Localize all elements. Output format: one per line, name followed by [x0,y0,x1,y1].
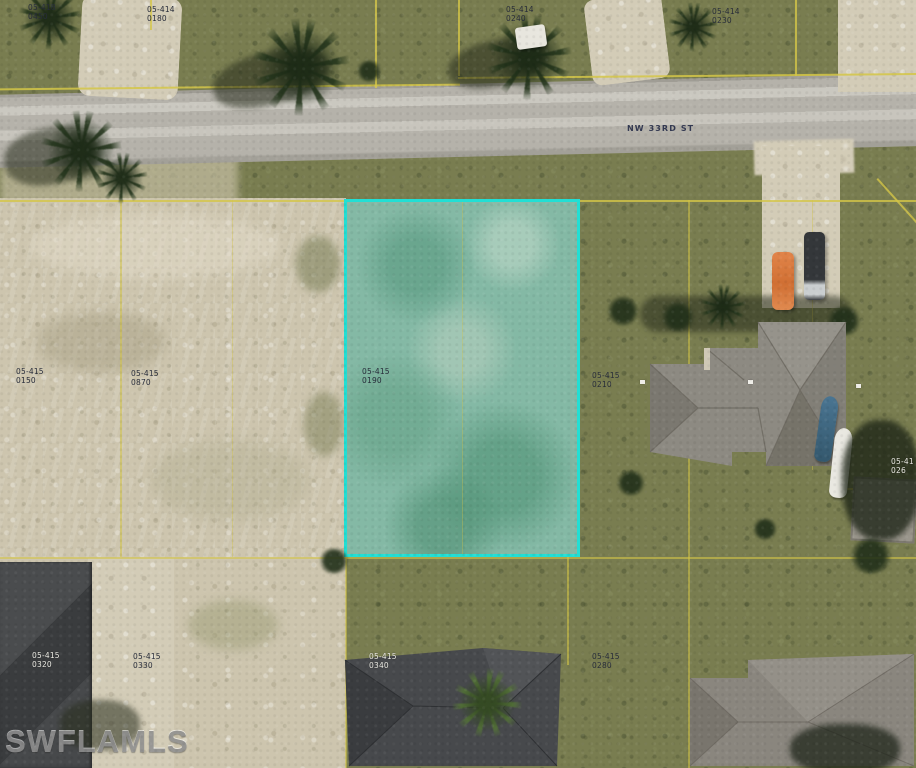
palm-tree-bottom-center [452,668,522,738]
parcel-line-rear-horizontal [0,557,916,559]
vehicle-suv [804,232,825,300]
parcel-label-line: 0240 [506,15,534,24]
survey-marker [748,380,753,384]
driveway-top-center [583,0,671,86]
parcel-line-vertical [232,200,233,557]
parcel-label-line: 0320 [32,661,60,670]
parcel-label-line: 0330 [133,662,161,671]
mls-watermark: SWFLAMLS [5,724,189,760]
tree-cluster-right [842,420,916,540]
bush [848,538,894,574]
parcel-line-inside-highlight [462,202,463,554]
parcel-label-bottom-center: 05-415 0340 [369,653,397,670]
bush [356,60,382,82]
parcel-line-vertical [120,200,122,557]
scrub-green-patch [304,392,344,456]
parcel-label-top-center: 05-414 0240 [506,6,534,23]
palm-tree [668,2,718,52]
parcel-label-line: 0210 [592,381,620,390]
parcel-label-bottom-right: 05-415 0280 [592,653,620,670]
bush [318,548,350,574]
survey-marker [640,380,645,384]
parcel-label-right-edge: 05-41 026 [891,458,914,475]
parcel-line-vertical [567,557,569,665]
bush [606,296,640,326]
parcel-label-line: 0870 [131,379,159,388]
gravel-top-right [838,0,916,92]
parcel-label-highlighted: 05-415 0190 [362,368,390,385]
palm-shadow-bottom-right [790,724,900,768]
dirt-dark-patch [36,312,166,372]
palm-tree [96,152,148,204]
parcel-label-line: 0340 [369,662,397,671]
parcel-label-line: 0190 [362,377,390,386]
survey-marker [856,384,861,388]
dirt-dark-patch [150,440,310,520]
parcel-label-mid-left-2: 05-415 0870 [131,370,159,387]
parcel-label-mid-left: 05-415 0150 [16,368,44,385]
scrub-green-patch [188,600,278,650]
parcel-label-top-left-2: 05-414 0180 [147,6,175,23]
white-structure-top [515,24,548,50]
vehicle-orange [772,252,794,310]
parcel-label-bottom-left-roof: 05-415 0320 [32,652,60,669]
street-label: NW 33RD ST [627,124,694,133]
parcel-label-mid-right: 05-415 0210 [592,372,620,389]
parcel-label-top-right: 05-414 0230 [712,8,740,25]
parcel-line-diagonal [877,178,916,227]
palm-tree [252,18,350,116]
parcel-label-top-left: 05-418 0450 [28,4,56,21]
parcel-label-line: 026 [891,467,914,476]
bush [616,470,646,496]
aerial-parcel-map: NW 33RD ST 05-418 0450 05-414 0180 05-41… [0,0,916,768]
parcel-label-line: 0450 [28,13,56,22]
parcel-label-bottom-left: 05-415 0330 [133,653,161,670]
parcel-label-line: 0280 [592,662,620,671]
scrub-green-patch [296,236,340,292]
parcel-label-line: 0230 [712,17,740,26]
parcel-label-line: 0180 [147,15,175,24]
bush [752,518,778,540]
parcel-line-vertical [795,0,797,76]
dirt-light-patch [30,214,280,278]
parcel-label-line: 0150 [16,377,44,386]
